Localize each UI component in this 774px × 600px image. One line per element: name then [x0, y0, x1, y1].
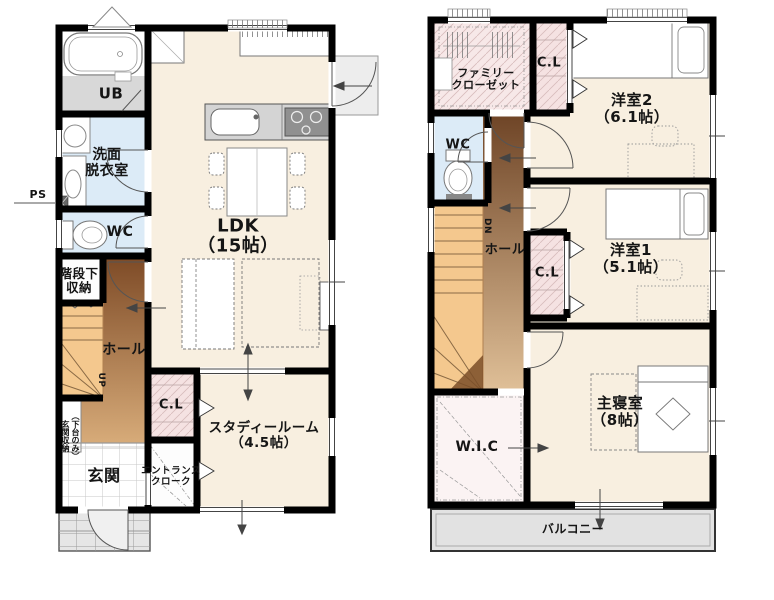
room-label-closet-2f-top: C.L	[537, 57, 561, 72]
stairs-down-label: DN	[482, 218, 492, 234]
room-label-ub: UB	[99, 86, 124, 103]
room-label-balcony: バルコニー	[542, 523, 604, 537]
room-label-entrance: 玄関	[87, 467, 120, 485]
room-label-wc-2f: WC	[446, 139, 471, 154]
room-label-closet-2f-mid: C.L	[535, 267, 559, 282]
room-label-wic: W.I.C	[456, 440, 499, 456]
room-label-entrance-cloak: エントランス クローク	[141, 466, 201, 487]
room-label-ps: PS	[30, 189, 47, 201]
room-label-family-closet: ファミリー クローゼット	[452, 68, 521, 93]
room-label-master-bedroom: 主寝室 （8帖）	[591, 395, 648, 429]
room-label-entrance-storage: 玄関収納 （下台のみ）	[60, 412, 80, 460]
room-label-bedroom2: 洋室2 （6.1帖）	[595, 92, 670, 126]
room-label-bedroom1: 洋室1 （5.1帖）	[594, 242, 669, 276]
room-label-hall-2f: ホール	[485, 244, 526, 259]
room-label-washroom: 洗面 脱衣室	[85, 148, 129, 180]
room-label-hall-1f: ホール	[102, 343, 146, 359]
room-label-ldk: LDK （15帖）	[197, 217, 279, 258]
floor-plan: UB 洗面 脱衣室 PS WC 階段下 収納 ホール UP LDK （15帖） …	[0, 0, 774, 600]
room-label-study: スタディールーム （4.5帖）	[209, 421, 320, 452]
room-label-wc-1f: WC	[107, 225, 134, 241]
stairs-up-label: UP	[96, 373, 106, 388]
room-label-under-stair-storage: 階段下 収納	[59, 267, 98, 295]
room-label-closet-1f: C.L	[159, 399, 183, 414]
